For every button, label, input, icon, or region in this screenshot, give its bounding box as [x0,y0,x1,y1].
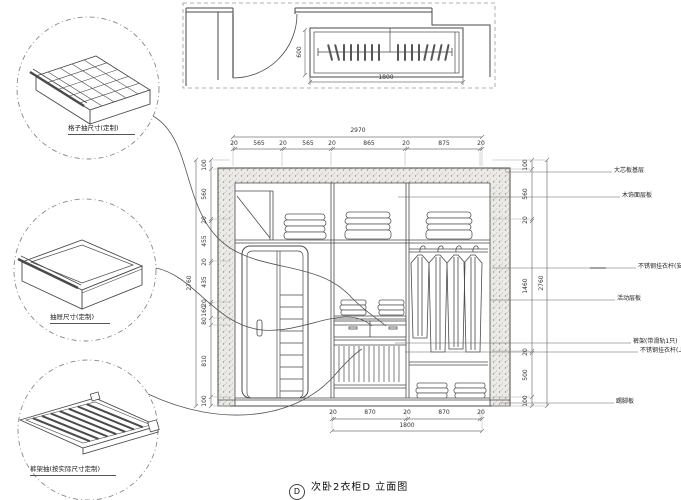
annotation-skirting: 踢脚板 [616,399,634,405]
left-dim-seg-7: 160 [202,305,208,316]
hanging-rod [409,249,488,252]
left-dim-seg-5: 435 [202,276,208,287]
detail-label-drawer: 抽屉尺寸(定制) [50,314,110,324]
annotation-hanging-rod: 不锈钢挂衣杆(安装2只) [638,264,681,270]
drawer-fronts [334,321,406,337]
elevation-door [242,246,308,398]
bottom-dim-seg-3: 870 [438,410,449,416]
plan-hangers [328,45,448,60]
title-bubble: D [289,484,305,500]
top-dim-seg-8: 20 [477,141,485,147]
bottom-dim-seg-1: 870 [364,410,375,416]
left-dim-seg-2: 20 [202,216,208,224]
folded-clothes-top [284,212,472,239]
plan-door-arc [233,14,297,78]
plan-divider [390,28,455,73]
hanging-clothes [411,246,482,352]
folded-clothes-bottom [416,383,486,398]
right-dim-seg-6: 100 [523,395,529,406]
top-dim-seg-2: 20 [279,141,287,147]
left-dim-seg-4: 20 [202,258,208,266]
plan-view [183,3,495,88]
cad-sheet: 600 1800 2970 20 565 20 565 20 865 20 87… [0,0,681,500]
right-dim-overall: 2760 [539,275,545,290]
top-dim-seg-3: 565 [302,141,313,147]
left-dim-seg-8: 80 [202,317,208,325]
detail-label-grid-tray: 格子抽尺寸(定制) [68,125,135,135]
plan-walls [186,8,490,86]
annotation-shelf-board: 木饰面层板 [622,193,652,199]
detail-trouser-rack [18,360,159,500]
detail-grid-tray [17,17,159,159]
right-column [409,246,488,398]
elevation-view [218,168,510,406]
top-dim-seg-1: 565 [253,141,264,147]
bottom-dim-overall: 1800 [399,423,414,429]
top-dim-overall: 2970 [350,128,365,134]
floor-baseboard [218,398,510,406]
bottom-dim-seg-0: 20 [329,410,337,416]
right-dim-seg-5: 500 [523,369,529,380]
detail-label-trouser-rack: 裤架抽(按实际尺寸定制) [30,466,116,476]
folded-clothes-small [340,300,404,315]
right-dim-seg-3: 1460 [523,278,529,293]
annotation-ceiling: 大芯板基层 [614,168,644,174]
left-dim-seg-10: 100 [202,395,208,406]
plan-depth-dim: 600 [297,46,303,57]
top-dim-seg-4: 20 [328,141,336,147]
annotation-trouser-rack: 裤架(带滑轨1只) [633,339,678,345]
top-dim-seg-7: 875 [438,141,449,147]
left-dim-seg-9: 810 [202,355,208,366]
top-dim-seg-6: 20 [402,141,410,147]
top-dim-seg-5: 865 [363,141,374,147]
left-dim-seg-3: 455 [202,235,208,246]
right-dim-seg-4: 20 [523,348,529,356]
annotation-adjustable-shelf: 活动层板 [617,296,641,302]
right-dim-seg-0: 100 [523,159,529,170]
bottom-dim-seg-2: 20 [403,410,411,416]
annotation-leaders [395,172,638,403]
plan-width-dim: 1800 [378,75,393,81]
drawing-canvas [0,0,681,500]
page-title: 次卧2衣柜D 立面图 [311,478,408,493]
top-dim-seg-0: 20 [230,141,238,147]
right-dim-seg-1: 560 [523,188,529,199]
left-dim-overall: 2760 [187,275,193,290]
left-dim-seg-0: 100 [202,159,208,170]
annotation-rod-lower: 不锈钢挂衣杆(上1只) [640,348,681,354]
corner-sloped-panel [235,191,273,238]
left-dim-seg-1: 560 [202,188,208,199]
lower-shelf [409,362,488,365]
plan-wardrobe-inner [314,32,459,73]
top-shelf [235,240,490,243]
bottom-dim-seg-4: 20 [477,410,485,416]
right-dim-seg-2: 20 [523,216,529,224]
